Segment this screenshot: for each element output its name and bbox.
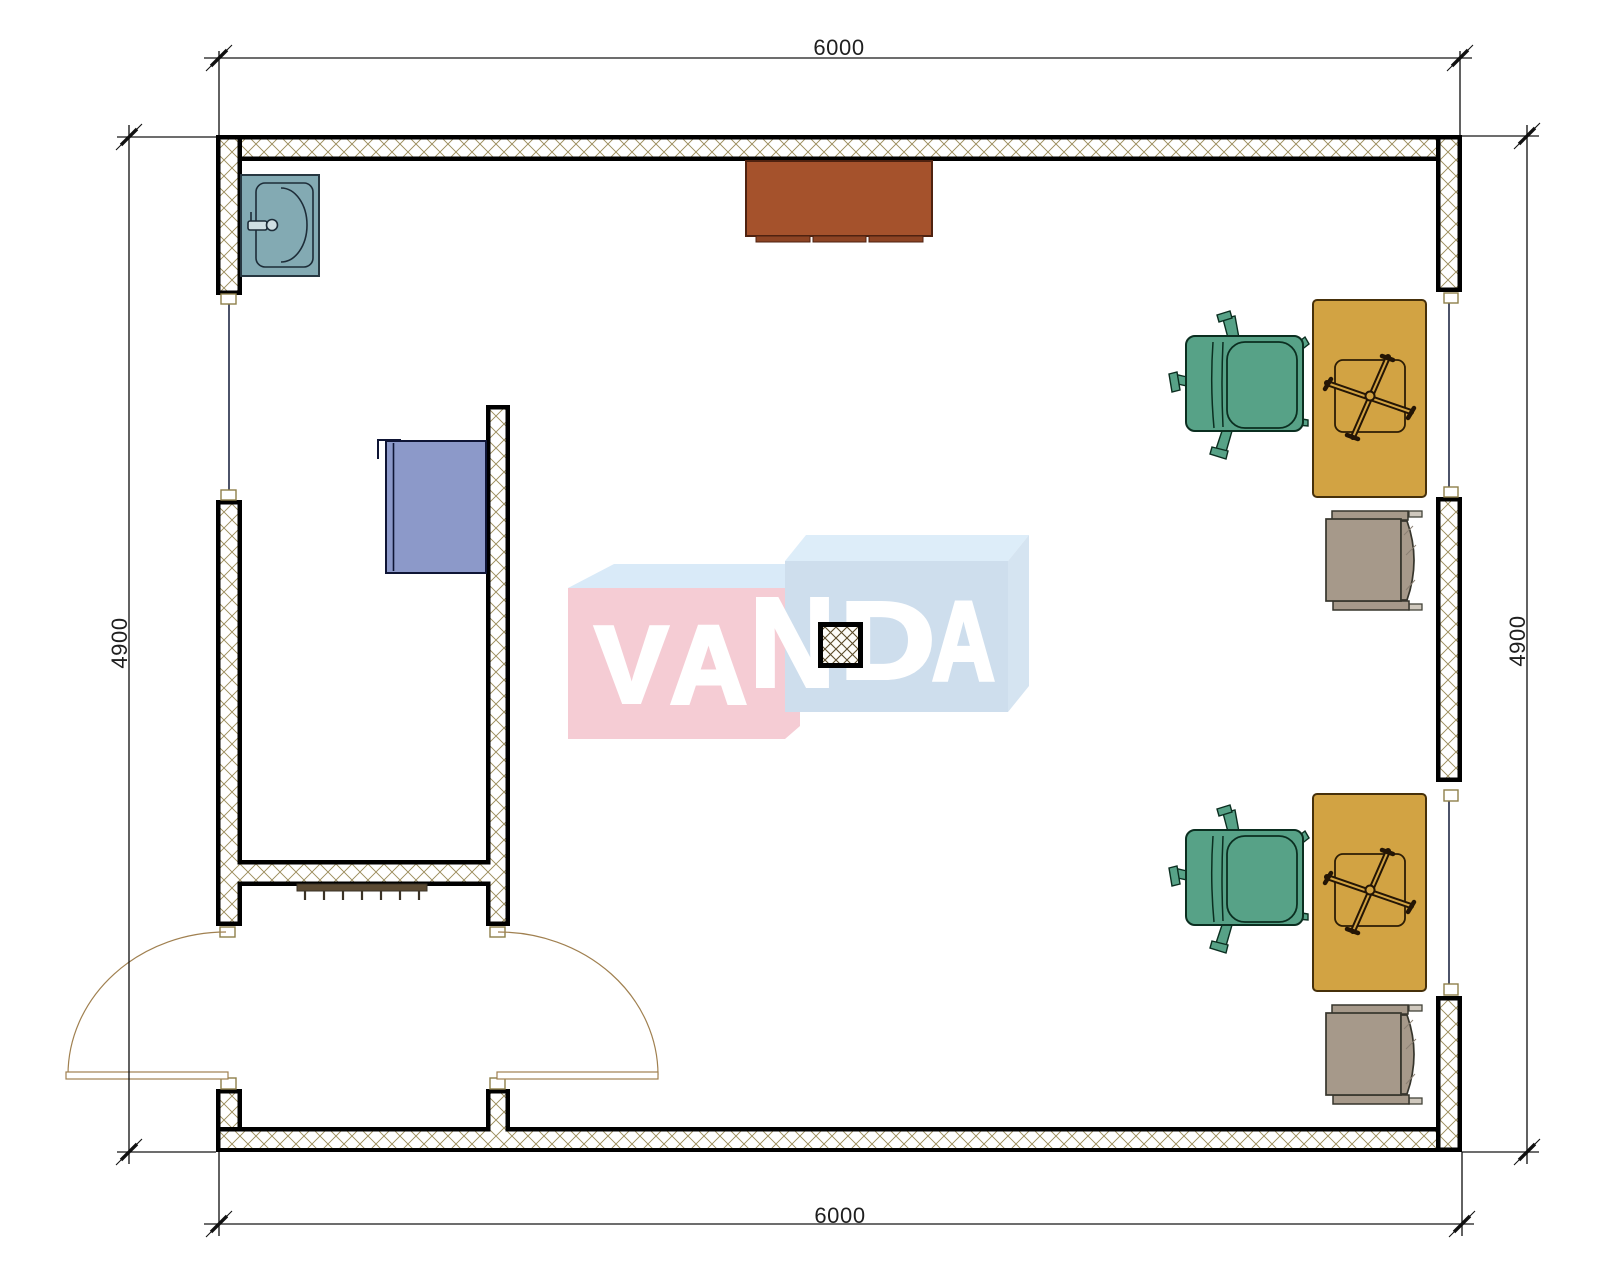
svg-text:6000: 6000 — [813, 35, 864, 60]
svg-text:A: A — [932, 579, 995, 704]
svg-text:4900: 4900 — [1505, 615, 1530, 666]
svg-text:V: V — [595, 604, 668, 726]
svg-text:6000: 6000 — [814, 1203, 865, 1228]
svg-text:A: A — [670, 604, 747, 727]
svg-text:4900: 4900 — [107, 617, 132, 668]
